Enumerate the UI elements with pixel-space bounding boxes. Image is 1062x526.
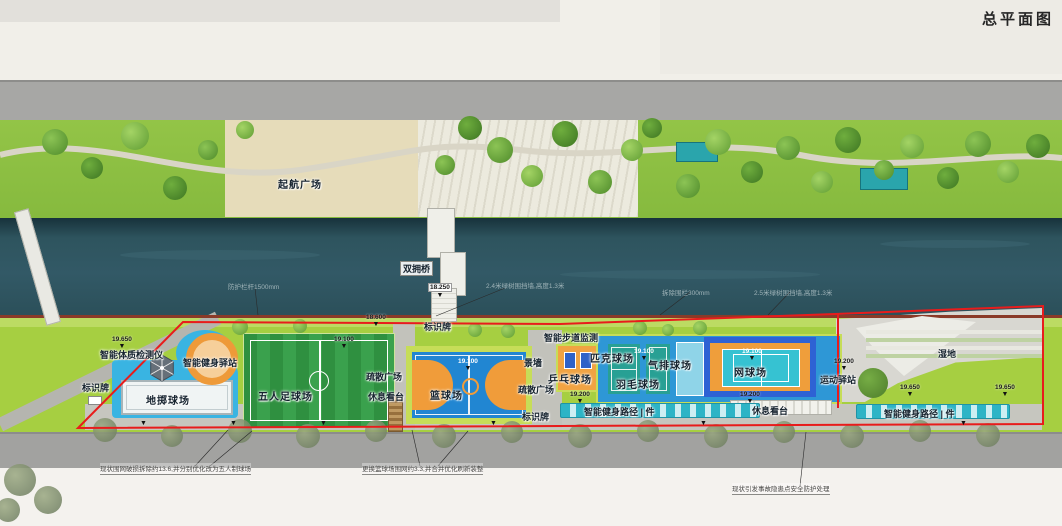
- elevation-marker: 19.100▼: [458, 358, 478, 372]
- triangle-marker-icon: ▼: [640, 355, 647, 362]
- annotation-hedge-note-left: 2.4米绿树围挡墙,高度1.3米: [486, 280, 564, 290]
- label-air-volleyball-court: 气排球场: [648, 357, 692, 372]
- signboard: [88, 396, 102, 405]
- tree-icon: [773, 421, 795, 443]
- elevation-marker: 18.600▼: [366, 314, 386, 328]
- tree-icon: [621, 139, 643, 161]
- tree-icon: [704, 424, 728, 448]
- triangle-marker-icon: ▼: [372, 321, 379, 328]
- tree-icon: [552, 121, 578, 147]
- triangle-marker-icon: ▼: [1001, 391, 1008, 398]
- tree-icon: [501, 324, 515, 338]
- tree-icon: [432, 424, 456, 448]
- label-pingpong-court: 乒乓球场: [548, 371, 592, 386]
- triangle-marker-icon: ▼: [436, 292, 443, 299]
- label-smart-walkway-monitor: 智能步道监测: [544, 331, 598, 344]
- tree-icon: [741, 161, 763, 183]
- tree-icon: [293, 319, 307, 333]
- label-basketball-court: 篮球场: [430, 387, 463, 402]
- drawing-title: 总平面图: [982, 8, 1054, 29]
- tree-icon: [163, 176, 187, 200]
- tree-icon: [676, 174, 700, 198]
- tree-icon: [365, 420, 387, 442]
- annotation-note-basketball: 更换篮球场围网约3.3,并合并优化刷新装整: [362, 463, 483, 475]
- label-fitness-station: 智能健身驿站: [183, 356, 237, 369]
- tree-icon: [198, 140, 218, 160]
- elevation-marker: 19.200▼: [570, 391, 590, 405]
- tree-icon: [296, 424, 320, 448]
- label-sign-left: 标识牌: [82, 381, 109, 394]
- tree-icon: [487, 137, 513, 163]
- tree-icon: [588, 170, 612, 194]
- tree-icon: [458, 116, 482, 140]
- survey-marker: ▼: [490, 420, 497, 427]
- elevation-marker: 19.100▼: [742, 348, 762, 362]
- tree-icon: [900, 134, 924, 158]
- tree-icon: [42, 129, 68, 155]
- tree-icon: [568, 424, 592, 448]
- lawn-mound: [858, 368, 888, 398]
- top-road-faint: [0, 0, 560, 22]
- label-qihang-plaza: 起航广场: [278, 176, 322, 191]
- label-rest-stand-left: 休息看台: [368, 390, 404, 403]
- tree-icon: [236, 121, 254, 139]
- tree-icon: [662, 324, 674, 336]
- tree-icon: [93, 418, 117, 442]
- tree-icon: [705, 129, 731, 155]
- triangle-marker-icon: ▼: [490, 420, 497, 427]
- tree-icon: [776, 136, 800, 160]
- tree-icon: [501, 421, 523, 443]
- tree-icon: [121, 122, 149, 150]
- triangle-marker-icon: ▼: [906, 391, 913, 398]
- survey-marker: ▼: [960, 420, 967, 427]
- water-streak: [880, 240, 1030, 248]
- tree-icon: [81, 157, 103, 179]
- elevation-marker: 19.100▼: [334, 336, 354, 350]
- tree-icon: [1026, 134, 1050, 158]
- water-streak: [560, 270, 820, 279]
- elevation-marker: 19.650▼: [995, 384, 1015, 398]
- label-evac-plaza-left: 疏散广场: [366, 370, 402, 383]
- tree-icon: [34, 486, 62, 514]
- water-streak: [120, 250, 320, 260]
- label-wetland: 湿地: [938, 347, 956, 360]
- site-plan-canvas: 起航广场双拥桥标识牌智能步道监测智能体质检测仪智能健身驿站标识牌地掷球场五人足球…: [0, 0, 1062, 526]
- shuangyong-bridge-structure: [427, 208, 455, 258]
- triangle-marker-icon: ▼: [464, 365, 471, 372]
- triangle-marker-icon: ▼: [340, 343, 347, 350]
- annotation-note-safety: 现状引发事故隐患点安全防护处理: [732, 483, 830, 495]
- tree-icon: [937, 167, 959, 189]
- wetland-bar: [866, 338, 1042, 342]
- tree-icon: [435, 155, 455, 175]
- label-fitness-path-right: 智能健身路径 | 件: [884, 407, 955, 420]
- label-fitness-tester: 智能体质检测仪: [100, 348, 163, 361]
- tree-icon: [468, 323, 482, 337]
- annotation-hedge-note-right: 2.5米绿树围挡墙,高度1.3米: [754, 287, 832, 297]
- label-scenic-wall: 景墙: [524, 356, 542, 369]
- triangle-marker-icon: ▼: [140, 420, 147, 427]
- survey-marker: ▼: [320, 420, 327, 427]
- label-rest-stand-right: 休息看台: [752, 404, 788, 417]
- river: [0, 218, 1062, 318]
- triangle-marker-icon: ▼: [576, 398, 583, 405]
- pingpong-table: [564, 352, 576, 369]
- triangle-marker-icon: ▼: [320, 420, 327, 427]
- triangle-marker-icon: ▼: [700, 420, 707, 427]
- basketball-center-circle: [462, 378, 479, 395]
- bottom-margin: [0, 468, 1062, 526]
- survey-marker: ▼: [230, 420, 237, 427]
- tree-icon: [976, 423, 1000, 447]
- tree-icon: [633, 321, 647, 335]
- annotation-pipe-note: 拆除围栏300mm: [662, 287, 710, 297]
- triangle-marker-icon: ▼: [840, 365, 847, 372]
- elevation-marker: 19.650▼: [900, 384, 920, 398]
- elevation-marker: 19.200▼: [740, 391, 760, 405]
- tree-icon: [232, 319, 248, 335]
- label-pickleball-court: 匹克球场: [590, 350, 634, 365]
- label-shuangyong-bridge: 双拥桥: [400, 261, 433, 276]
- label-tennis-court: 网球场: [734, 364, 767, 379]
- triangle-marker-icon: ▼: [748, 355, 755, 362]
- tree-icon: [693, 321, 707, 335]
- label-sign-bridge: 标识牌: [424, 320, 451, 333]
- tree-icon: [521, 165, 543, 187]
- tree-icon: [874, 160, 894, 180]
- triangle-marker-icon: ▼: [960, 420, 967, 427]
- tree-icon: [840, 424, 864, 448]
- survey-marker: ▼: [140, 420, 147, 427]
- triangle-marker-icon: ▼: [230, 420, 237, 427]
- tree-icon: [997, 161, 1019, 183]
- north-road: [0, 80, 1062, 124]
- elevation-marker: 19.200▼: [834, 358, 854, 372]
- label-bocce-court: 地掷球场: [146, 392, 190, 407]
- label-sports-station: 运动驿站: [820, 373, 856, 386]
- tree-icon: [161, 425, 183, 447]
- annotation-rail-note: 防护栏杆1500mm: [228, 281, 279, 291]
- label-fitness-path-mid: 智能健身路径 | 件: [584, 405, 655, 418]
- tree-icon: [637, 420, 659, 442]
- tree-icon: [4, 464, 36, 496]
- annotation-note-football: 现状围网破损拆除约13.6,并分别优化改为五人制球场: [100, 463, 251, 475]
- label-sign-mid: 标识牌: [522, 410, 549, 423]
- label-football-court: 五人足球场: [258, 388, 313, 403]
- tree-icon: [642, 118, 662, 138]
- tree-icon: [909, 420, 931, 442]
- south-bank-line: [0, 315, 1062, 318]
- tree-icon: [811, 171, 833, 193]
- keyhole-left: [412, 360, 453, 410]
- tree-icon: [835, 127, 861, 153]
- survey-marker: ▼: [700, 420, 707, 427]
- elevation-marker: 18.250▼: [428, 283, 452, 299]
- tree-icon: [965, 131, 991, 157]
- label-badminton-court: 羽毛球场: [616, 376, 660, 391]
- wetland-bar: [866, 330, 1042, 334]
